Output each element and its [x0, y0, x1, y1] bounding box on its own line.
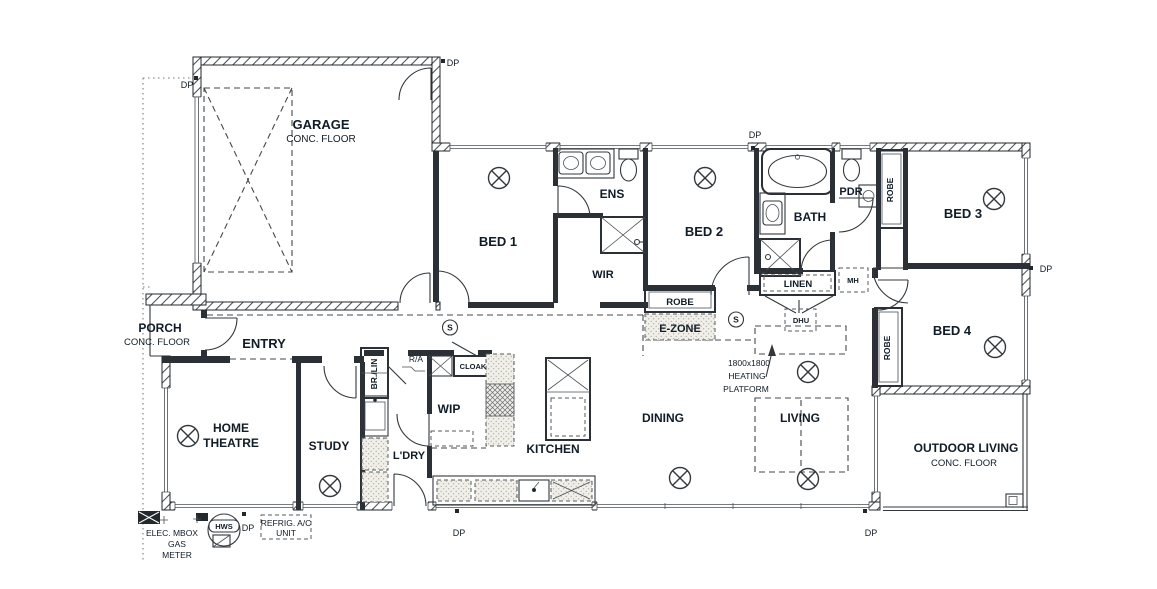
light-icon: [798, 469, 819, 490]
powder-label: PDR: [839, 186, 862, 198]
garage-internal-door: [400, 273, 430, 303]
meters-line3: METER: [162, 550, 192, 560]
front-door: [205, 318, 237, 350]
powder-door: [839, 198, 873, 232]
laundry-external-door-gap: [392, 502, 428, 511]
downpipe-label: DP: [749, 130, 762, 140]
ac-unit-line2: UNIT: [276, 528, 296, 538]
cloak-label: CLOAK: [460, 362, 487, 371]
bed1-door: [437, 271, 469, 303]
home-theatre-label-line1: HOME: [213, 421, 249, 435]
floor-plan-drawing: S S GARAGE CONC. FLOOR: [0, 0, 1157, 589]
smoke-alarm-label: S: [733, 315, 739, 325]
wir-label: WIR: [592, 269, 613, 281]
ezone-label: E-ZONE: [659, 323, 701, 335]
window-theatre-side: [162, 388, 171, 492]
laundry-external-door: [394, 474, 426, 506]
downpipe-label: DP: [181, 80, 194, 90]
dining-label: DINING: [642, 411, 684, 425]
window-bed1: [450, 143, 546, 152]
exterior-walls: [146, 57, 1030, 510]
garage-door-panel: [193, 97, 202, 263]
light-icon: [798, 362, 819, 383]
robe-bed4-label: ROBE: [882, 335, 892, 360]
kitchen-bench: [433, 476, 595, 505]
kitchen-label: KITCHEN: [526, 442, 579, 456]
downpipe-label: DP: [1040, 264, 1053, 274]
cloak-door-leaf: [452, 342, 477, 356]
porch-floor-label: CONC. FLOOR: [124, 337, 190, 348]
smoke-alarm-label: S: [447, 323, 453, 333]
bed4-label: BED 4: [933, 323, 972, 338]
porch-label: PORCH: [138, 321, 181, 335]
bath-door: [801, 240, 833, 272]
window-ens: [560, 143, 640, 152]
window-kitchen: [436, 502, 592, 511]
window-bed4: [1022, 296, 1031, 380]
meters-line1: ELEC. MBOX: [146, 528, 198, 538]
light-icon: [695, 168, 716, 189]
outdoor-living-floor-label: CONC. FLOOR: [931, 458, 997, 469]
robe-bed3-label: ROBE: [885, 177, 895, 202]
living-label: LIVING: [780, 411, 820, 425]
heating-platform-zone: [755, 326, 848, 472]
laundry-trough: [362, 396, 388, 436]
window-bed2: [652, 143, 748, 152]
meters-line2: GAS: [168, 539, 186, 549]
study-label: STUDY: [309, 439, 350, 453]
bath-label: BATH: [794, 210, 826, 224]
stacker-door-dining: [597, 502, 869, 511]
wip-bench: [431, 431, 473, 446]
ensuite-fixtures: [556, 149, 645, 253]
light-icon: [489, 168, 510, 189]
return-air-symbol: [402, 367, 425, 371]
study-door: [324, 366, 356, 398]
downpipe-label: DP: [865, 528, 878, 538]
garage-side-door: [399, 68, 431, 100]
garage-label: GARAGE: [292, 117, 349, 132]
light-icon: [320, 476, 341, 497]
island-bench: [546, 358, 590, 440]
bed3-label: BED 3: [944, 206, 982, 221]
ensuite-label: ENS: [600, 187, 625, 201]
pantry-column: [486, 354, 514, 446]
outdoor-living-label: OUTDOOR LIVING: [914, 441, 1019, 455]
laundry-washer: [362, 438, 388, 470]
window-bed3: [1022, 158, 1031, 254]
heating-platform-line1: 1800x1800: [728, 358, 770, 368]
manhole-label: MH: [847, 276, 859, 285]
broom-linen-label: BR./LIN: [369, 359, 379, 390]
wip-label: WIP: [438, 402, 461, 416]
laundry-door: [397, 414, 429, 446]
entry-label: ENTRY: [242, 336, 286, 351]
heating-platform-line3: PLATFORM: [723, 384, 769, 394]
smoke-alarm-2: S: [729, 312, 744, 327]
sliding-door-living: [872, 396, 881, 492]
light-icon: [178, 426, 199, 447]
bed4-door: [878, 280, 908, 310]
floor-plan-canvas: S S GARAGE CONC. FLOOR: [0, 0, 1157, 589]
window-bath: [766, 143, 832, 152]
bed2-label: BED 2: [685, 224, 723, 239]
linen-label: LINEN: [784, 279, 813, 290]
window-study: [303, 502, 357, 511]
laundry-label: L'DRY: [393, 450, 426, 462]
bed2-door: [711, 257, 749, 295]
broom-cupboard: [429, 356, 452, 376]
broom-linen-door-leaf: [388, 366, 406, 384]
robe-bed2-label: ROBE: [666, 297, 693, 308]
linen-chevron: [765, 296, 833, 313]
return-air-label: R/A: [409, 354, 424, 364]
ac-unit-line1: REFRIG. A/C: [261, 518, 312, 528]
heating-platform-line2: HEATING: [728, 371, 765, 381]
window-theatre-front: [175, 502, 293, 511]
downpipe-label: DP: [453, 528, 466, 538]
garage-floor-label: CONC. FLOOR: [286, 134, 355, 145]
window-pdr: [840, 143, 870, 152]
storage-casework: [361, 150, 905, 398]
downpipe-label: DP: [447, 58, 460, 68]
dhu-label: DHU: [793, 316, 809, 325]
home-theatre-label-line2: THEATRE: [203, 436, 259, 450]
hws-label: HWS: [215, 522, 233, 531]
garage-car-space: [204, 88, 292, 272]
light-icon: [985, 337, 1006, 358]
downpipe-label: DP: [242, 523, 255, 533]
laundry-dryer: [362, 472, 388, 502]
bed1-label: BED 1: [479, 234, 517, 249]
light-icon: [984, 189, 1005, 210]
light-icon: [670, 468, 691, 489]
smoke-alarm-1: S: [443, 320, 458, 335]
